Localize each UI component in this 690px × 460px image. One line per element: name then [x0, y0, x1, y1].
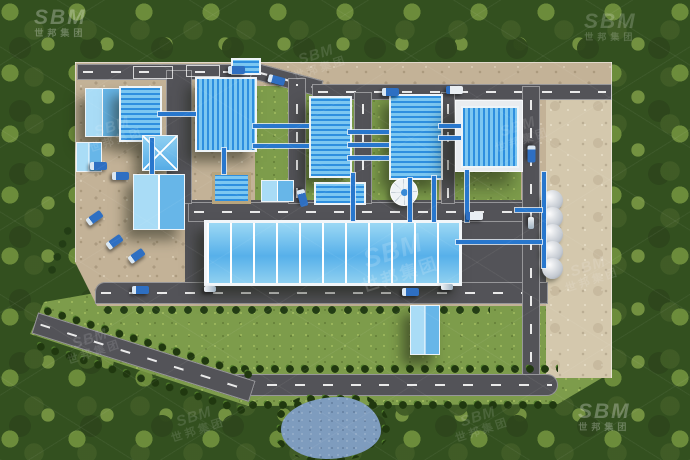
- tree-row-north: [236, 360, 558, 374]
- conveyor: [253, 124, 309, 128]
- road-middle: [188, 202, 540, 222]
- building-processing-3: [389, 94, 443, 180]
- conveyor: [150, 138, 154, 174]
- lane-marking: [296, 84, 298, 198]
- watermark-logo: SBM: [34, 6, 87, 29]
- lane-marking: [101, 292, 542, 294]
- building-office-south: [410, 305, 440, 355]
- truck: [466, 212, 483, 220]
- thickener-tank: [390, 178, 418, 206]
- pond: [281, 397, 381, 459]
- watermark-cn: 世邦集团: [578, 423, 631, 433]
- lane-marking: [239, 384, 552, 386]
- conveyor: [439, 136, 461, 140]
- conveyor: [253, 144, 309, 148]
- shed-small-2: [314, 182, 366, 205]
- road-perimeter-south: [233, 374, 558, 396]
- watermark-cn: 世邦集团: [584, 33, 637, 43]
- conveyor: [348, 130, 389, 134]
- truck: [446, 86, 463, 94]
- watermark-corner-top-left: SBM 世邦集团: [34, 6, 87, 39]
- silo-pipe: [542, 172, 546, 268]
- building-pyramid-roof: [142, 135, 178, 171]
- fence-right: [611, 62, 612, 378]
- parking-bay-marking: [186, 65, 220, 77]
- watermark-corner-top-right: SBM 世邦集团: [584, 10, 637, 43]
- truck: [528, 146, 536, 163]
- lane-marking: [194, 211, 534, 213]
- truck: [382, 88, 399, 96]
- truck: [402, 288, 419, 296]
- conveyor: [351, 173, 355, 221]
- road-vertical-3: [441, 92, 455, 204]
- watermark-logo: SBM: [584, 10, 637, 33]
- conveyor: [456, 240, 542, 244]
- truck: [132, 286, 149, 294]
- truck: [228, 66, 245, 74]
- truck: [90, 162, 107, 170]
- shed-small-1: [261, 180, 294, 202]
- car: [528, 217, 534, 229]
- car: [204, 286, 216, 292]
- car: [441, 284, 453, 290]
- silo-group: [542, 190, 568, 270]
- conveyor: [158, 112, 196, 116]
- lane-marking: [447, 98, 449, 198]
- conveyor: [348, 143, 389, 147]
- conveyor: [348, 156, 389, 160]
- aerial-plant-render: SBM 世邦集团 SBM 世邦集团 SBM 世邦集团 SBM 世邦集团 SBM …: [0, 0, 690, 460]
- watermark-corner-bottom-right: SBM 世邦集团: [578, 400, 631, 433]
- watermark-cn: 世邦集团: [34, 29, 87, 39]
- building-main-processing: [195, 77, 257, 152]
- conveyor: [222, 148, 226, 174]
- conveyor: [408, 178, 412, 222]
- building-processing-2: [309, 96, 352, 178]
- conveyor: [515, 208, 542, 212]
- watermark-logo: SBM: [578, 400, 631, 423]
- shed-frame: [212, 172, 251, 204]
- conveyor: [439, 124, 461, 128]
- building-workshop-south: [133, 174, 185, 230]
- conveyor: [432, 176, 436, 222]
- truck: [112, 172, 129, 180]
- gate-weighbridge-marking: [133, 66, 173, 79]
